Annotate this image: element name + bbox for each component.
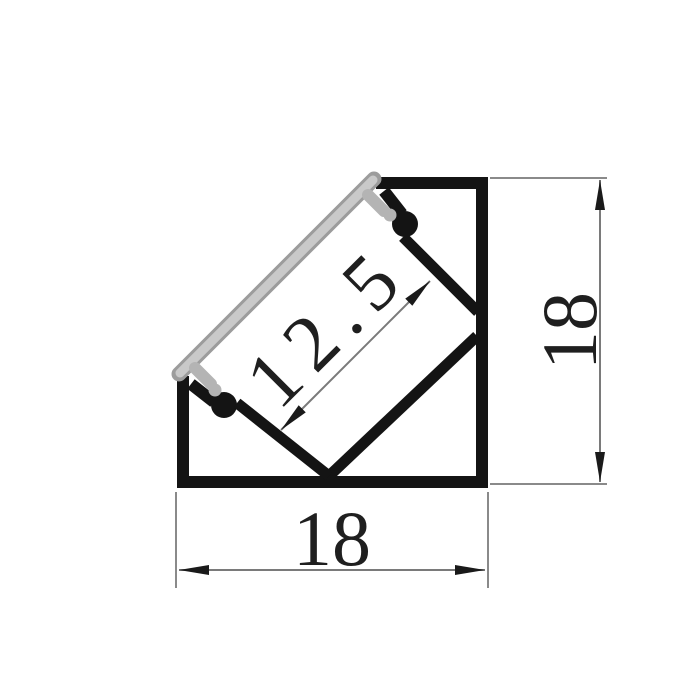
drawing-canvas: 12.5 18 18: [0, 0, 700, 700]
clip-hook-tip-upper: [384, 209, 397, 222]
dimension-label-right-height: 18: [526, 292, 613, 370]
clip-hook-tip-lower: [209, 384, 222, 397]
dimension-label-bottom-width: 18: [293, 495, 371, 582]
profile-cross-section-drawing: 12.5 18 18: [0, 0, 700, 700]
